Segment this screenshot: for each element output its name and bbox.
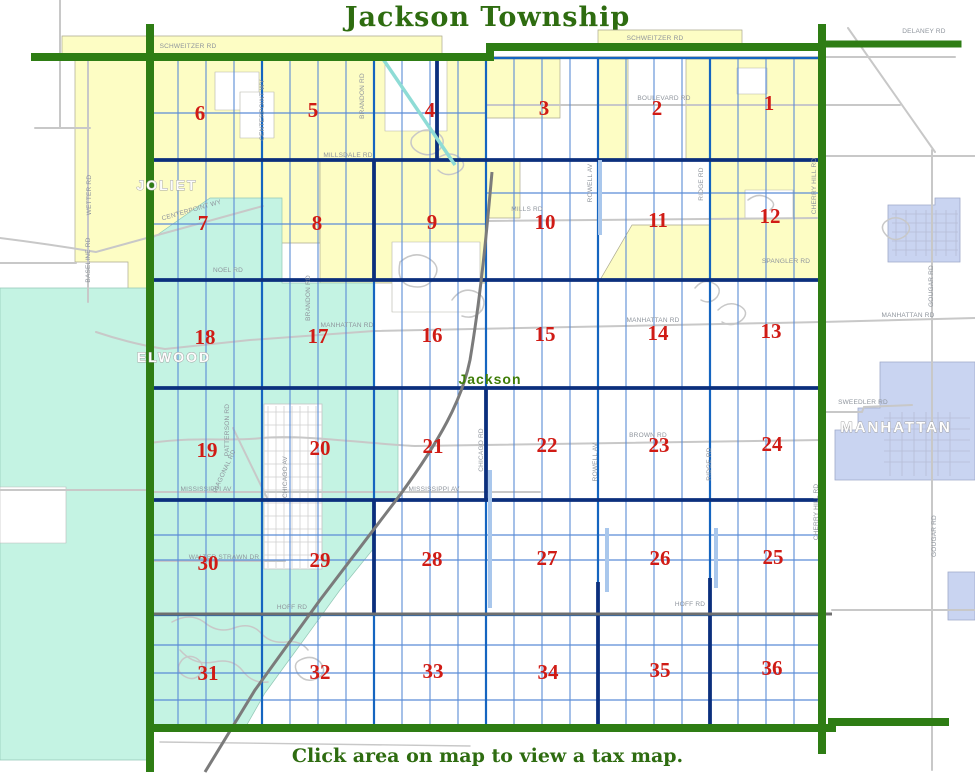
section-area-27[interactable] <box>486 500 598 615</box>
section-area-28[interactable] <box>374 500 486 615</box>
road-label: GOUGAR RD <box>928 265 935 307</box>
section-area-24[interactable] <box>710 388 822 500</box>
section-area-10[interactable] <box>486 160 598 280</box>
section-area-3[interactable] <box>486 58 598 160</box>
section-area-1[interactable] <box>710 58 822 160</box>
section-area-23[interactable] <box>598 388 710 500</box>
place-label-manhattan: MANHATTAN <box>840 419 952 436</box>
section-area-13[interactable] <box>710 280 822 388</box>
elwood-white-notch <box>0 487 66 543</box>
manhattan-village-areas <box>835 198 975 620</box>
section-hotspots <box>150 58 822 728</box>
section-area-33[interactable] <box>374 615 486 728</box>
section-area-25[interactable] <box>710 500 822 615</box>
township-map: SCHWEITZER RDSCHWEITZER RDDELANEY RDBOUL… <box>0 0 975 778</box>
section-area-6[interactable] <box>150 58 262 160</box>
section-area-5[interactable] <box>262 58 374 160</box>
section-area-16[interactable] <box>374 280 486 388</box>
road-label: DELANEY RD <box>902 28 946 35</box>
road-label: GOUGAR RD <box>931 515 938 557</box>
section-area-7[interactable] <box>150 160 262 280</box>
section-area-4[interactable] <box>374 58 486 160</box>
road-label: BASELINE RD <box>85 237 92 282</box>
road-label: MANHATTAN RD <box>881 312 934 319</box>
section-area-8[interactable] <box>262 160 374 280</box>
section-area-15[interactable] <box>486 280 598 388</box>
section-area-19[interactable] <box>150 388 262 500</box>
section-area-26[interactable] <box>598 500 710 615</box>
section-area-35[interactable] <box>598 615 710 728</box>
section-area-22[interactable] <box>486 388 598 500</box>
section-area-21[interactable] <box>374 388 486 500</box>
section-area-31[interactable] <box>150 615 262 728</box>
section-area-20[interactable] <box>262 388 374 500</box>
section-area-18[interactable] <box>150 280 262 388</box>
section-area-30[interactable] <box>150 500 262 615</box>
section-area-29[interactable] <box>262 500 374 615</box>
road-label: SCHWEITZER RD <box>627 35 684 42</box>
tax-map-page: Jackson Township <box>0 0 975 778</box>
road-label: SWEEDLER RD <box>838 399 888 406</box>
section-area-9[interactable] <box>374 160 486 280</box>
section-area-12[interactable] <box>710 160 822 280</box>
road-label: SCHWEITZER RD <box>160 43 217 50</box>
section-area-11[interactable] <box>598 160 710 280</box>
section-area-36[interactable] <box>710 615 822 728</box>
section-area-34[interactable] <box>486 615 598 728</box>
section-area-32[interactable] <box>262 615 374 728</box>
section-area-14[interactable] <box>598 280 710 388</box>
section-area-17[interactable] <box>262 280 374 388</box>
section-area-2[interactable] <box>598 58 710 160</box>
instruction-caption: Click area on map to view a tax map. <box>0 745 975 767</box>
road-label: WETTER RD <box>86 175 93 216</box>
